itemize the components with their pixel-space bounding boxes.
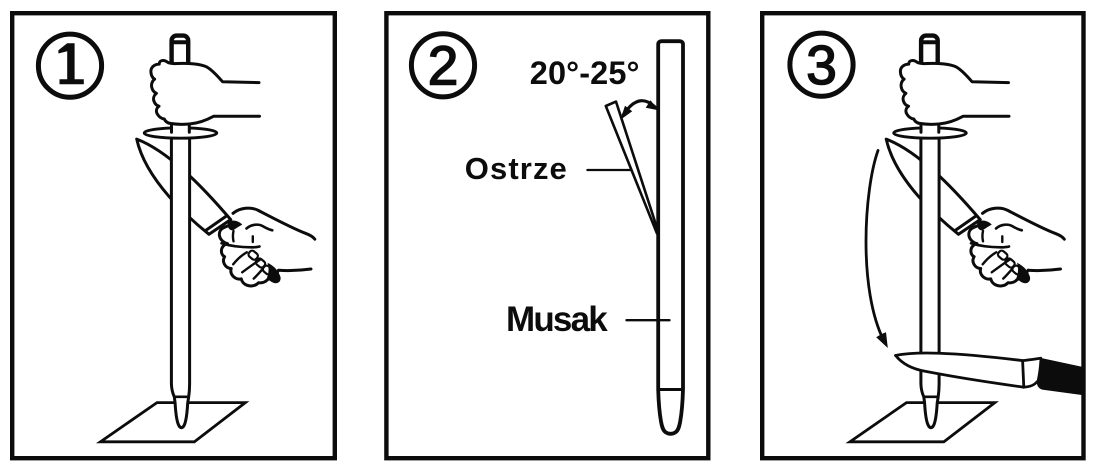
svg-text:Ostrze: Ostrze [465, 151, 568, 186]
svg-text:Musak: Musak [506, 300, 608, 339]
svg-text:3: 3 [806, 34, 837, 96]
svg-text:20°-25°: 20°-25° [530, 55, 640, 91]
svg-text:2: 2 [428, 35, 459, 97]
